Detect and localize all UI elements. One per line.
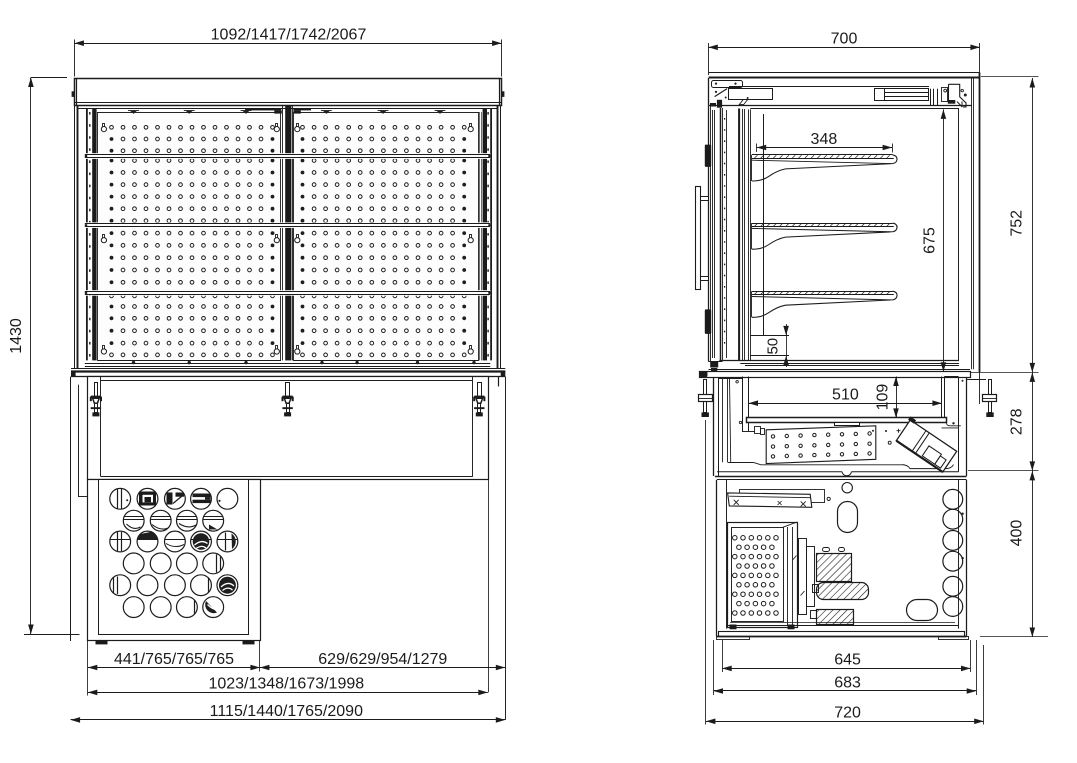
svg-text:278: 278: [1008, 408, 1025, 435]
svg-text:50: 50: [765, 338, 782, 355]
svg-text:1023/1348/1673/1998: 1023/1348/1673/1998: [208, 676, 364, 693]
svg-text:700: 700: [831, 31, 858, 48]
svg-text:720: 720: [834, 705, 861, 722]
svg-text:752: 752: [1008, 210, 1025, 237]
svg-text:1115/1440/1765/2090: 1115/1440/1765/2090: [210, 703, 363, 720]
svg-text:645: 645: [834, 652, 861, 669]
svg-text:348: 348: [811, 131, 838, 148]
svg-text:683: 683: [834, 674, 861, 691]
svg-text:629/629/954/1279: 629/629/954/1279: [318, 651, 447, 668]
svg-text:441/765/765/765: 441/765/765/765: [114, 651, 234, 668]
svg-text:1430: 1430: [8, 318, 25, 354]
svg-text:109: 109: [874, 384, 891, 411]
svg-text:400: 400: [1008, 520, 1025, 547]
svg-text:510: 510: [832, 387, 859, 404]
svg-text:1092/1417/1742/2067: 1092/1417/1742/2067: [211, 26, 367, 43]
svg-text:675: 675: [922, 227, 939, 254]
